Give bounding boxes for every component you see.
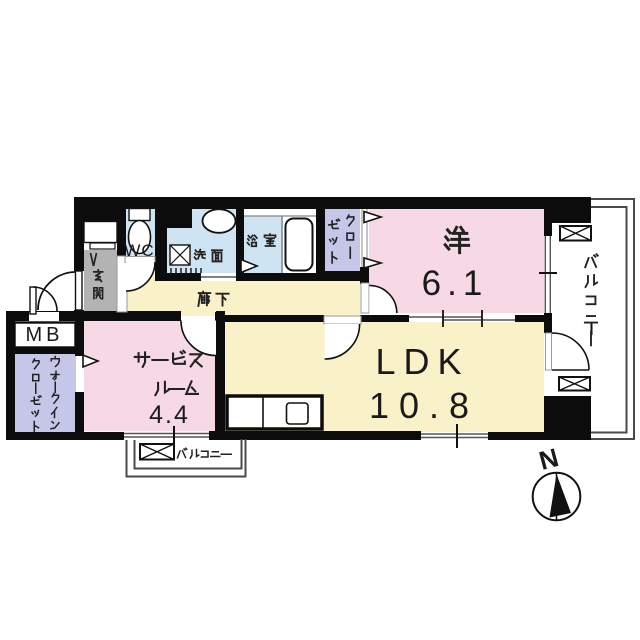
- svg-text:LDK: LDK: [375, 341, 469, 382]
- svg-text:MB: MB: [26, 324, 64, 346]
- svg-text:10.8: 10.8: [369, 385, 479, 426]
- svg-text:6.1: 6.1: [422, 264, 489, 303]
- svg-text:4.4: 4.4: [149, 401, 190, 429]
- svg-text:WC: WC: [124, 241, 154, 260]
